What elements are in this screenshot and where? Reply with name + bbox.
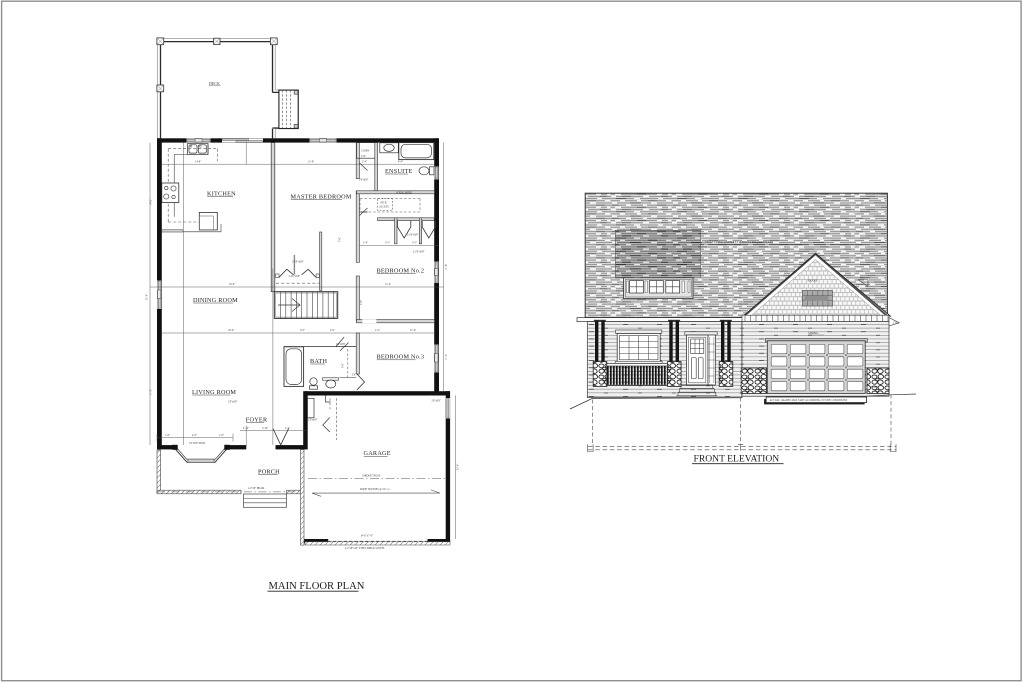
svg-text:1'-6": 1'-6" xyxy=(165,434,170,437)
svg-text:2-2'0"x6'8": 2-2'0"x6'8" xyxy=(413,251,425,254)
svg-text:LIVING ROOM: LIVING ROOM xyxy=(192,389,236,396)
svg-text:2'-4": 2'-4" xyxy=(363,242,368,245)
svg-text:22'-0": 22'-0" xyxy=(457,464,460,470)
svg-text:GIRDER TRUSS: GIRDER TRUSS xyxy=(362,474,381,477)
svg-text:2'6": 2'6" xyxy=(352,374,356,377)
svg-text:7'-6": 7'-6" xyxy=(339,237,342,242)
svg-text:16'-0": 16'-0" xyxy=(229,283,235,286)
svg-text:2'8"x6'8": 2'8"x6'8" xyxy=(308,419,318,422)
svg-text:BATH: BATH xyxy=(310,358,327,365)
svg-text:4'-0": 4'-0" xyxy=(192,434,197,437)
svg-text:8/12: 8/12 xyxy=(860,276,865,279)
svg-text:31'-4": 31'-4" xyxy=(146,294,149,300)
svg-text:SHAKE: SHAKE xyxy=(808,279,818,283)
svg-text:11'-2": 11'-2" xyxy=(445,354,448,360)
svg-text:2'-6": 2'-6" xyxy=(893,322,898,325)
svg-text:14'-8": 14'-8" xyxy=(195,161,201,164)
svg-text:2-2'0"x6'8": 2-2'0"x6'8" xyxy=(289,275,301,278)
svg-text:11'-0": 11'-0" xyxy=(410,329,416,332)
svg-text:ROOF TRUSSES @ 24" o.c.: ROOF TRUSSES @ 24" o.c. xyxy=(360,488,391,491)
svg-text:2'0"x6'8": 2'0"x6'8" xyxy=(359,211,369,214)
svg-text:18'-0": 18'-0" xyxy=(228,329,234,332)
svg-text:2'-4": 2'-4" xyxy=(375,329,380,332)
svg-text:4'-10": 4'-10" xyxy=(243,427,249,430)
svg-text:W'RDCAB'RD: W'RDCAB'RD xyxy=(396,192,412,195)
svg-text:11'-2": 11'-2" xyxy=(150,389,153,395)
svg-text:4'-0": 4'-0" xyxy=(330,329,335,332)
svg-text:1'-6": 1'-6" xyxy=(219,434,224,437)
svg-text:3'-0": 3'-0" xyxy=(300,329,305,332)
svg-text:PORCH: PORCH xyxy=(258,468,280,475)
svg-text:2'8"x6'8": 2'8"x6'8" xyxy=(228,401,238,404)
svg-text:14'-2": 14'-2" xyxy=(150,199,153,205)
svg-text:LINEN: LINEN xyxy=(362,150,370,153)
svg-text:BEDROOM No.2: BEDROOM No.2 xyxy=(377,267,425,274)
svg-text:SIDING: SIDING xyxy=(808,331,819,335)
svg-text:3'2"x6'8" BOW: 3'2"x6'8" BOW xyxy=(189,442,206,445)
svg-text:11'-6": 11'-6" xyxy=(445,264,448,270)
svg-text:DINING ROOM: DINING ROOM xyxy=(193,297,238,304)
svg-text:11'-8": 11'-8" xyxy=(308,161,314,164)
svg-text:2'-8": 2'-8" xyxy=(360,300,363,305)
svg-text:MASTER BEDROOM: MASTER BEDROOM xyxy=(291,193,352,200)
svg-text:BEDROOM No.3: BEDROOM No.3 xyxy=(377,354,425,361)
svg-text:2'8"x3'8": 2'8"x3'8" xyxy=(432,400,442,403)
svg-text:2'-2": 2'-2" xyxy=(285,427,290,430)
svg-text:FRONT ELEVATION: FRONT ELEVATION xyxy=(694,454,780,465)
svg-text:2-2"x8"x16" STEEL BRICK LINTEL: 2-2"x8"x16" STEEL BRICK LINTEL xyxy=(345,547,385,550)
svg-text:2-2"x8" BEAM: 2-2"x8" BEAM xyxy=(248,487,265,490)
svg-text:2'6"x6'8": 2'6"x6'8" xyxy=(359,178,369,181)
svg-text:TEXTURED ASPHALT SHINGLES (20: TEXTURED ASPHALT SHINGLES (20 YEAR) xyxy=(705,240,773,244)
svg-text:14'-0"x7'-0": 14'-0"x7'-0" xyxy=(361,535,374,538)
svg-text:ENSUITE: ENSUITE xyxy=(385,168,413,175)
svg-text:ACTUAL GRADES MAY VARY ACCORDI: ACTUAL GRADES MAY VARY ACCORDING TO SITE… xyxy=(770,399,848,402)
svg-text:2'-4": 2'-4" xyxy=(362,161,367,164)
svg-text:KITCHEN: KITCHEN xyxy=(207,190,236,197)
svg-text:2'6"x6'8": 2'6"x6'8" xyxy=(336,343,346,346)
svg-text:DECK: DECK xyxy=(209,81,220,86)
svg-text:3'-10": 3'-10" xyxy=(262,427,268,430)
svg-text:MAIN FLOOR PLAN: MAIN FLOOR PLAN xyxy=(269,581,365,592)
svg-text:5'-0": 5'-0" xyxy=(342,363,345,368)
svg-text:3'-5": 3'-5" xyxy=(385,242,390,245)
svg-text:2-2'0"x6'8": 2-2'0"x6'8" xyxy=(292,261,304,264)
svg-text:4'-4": 4'-4" xyxy=(398,161,403,164)
svg-text:2-2'0"x6'8": 2-2'0"x6'8" xyxy=(407,234,419,237)
svg-text:FOYER: FOYER xyxy=(246,417,268,424)
svg-text:STONE: STONE xyxy=(870,386,879,389)
svg-text:GARAGE: GARAGE xyxy=(364,450,391,457)
svg-text:3'-5": 3'-5" xyxy=(412,242,417,245)
svg-text:ATTIC: ATTIC xyxy=(380,202,388,205)
svg-text:2'-6": 2'-6" xyxy=(361,155,366,158)
svg-text:ACCESS: ACCESS xyxy=(379,206,389,209)
svg-text:11'-4": 11'-4" xyxy=(385,283,391,286)
